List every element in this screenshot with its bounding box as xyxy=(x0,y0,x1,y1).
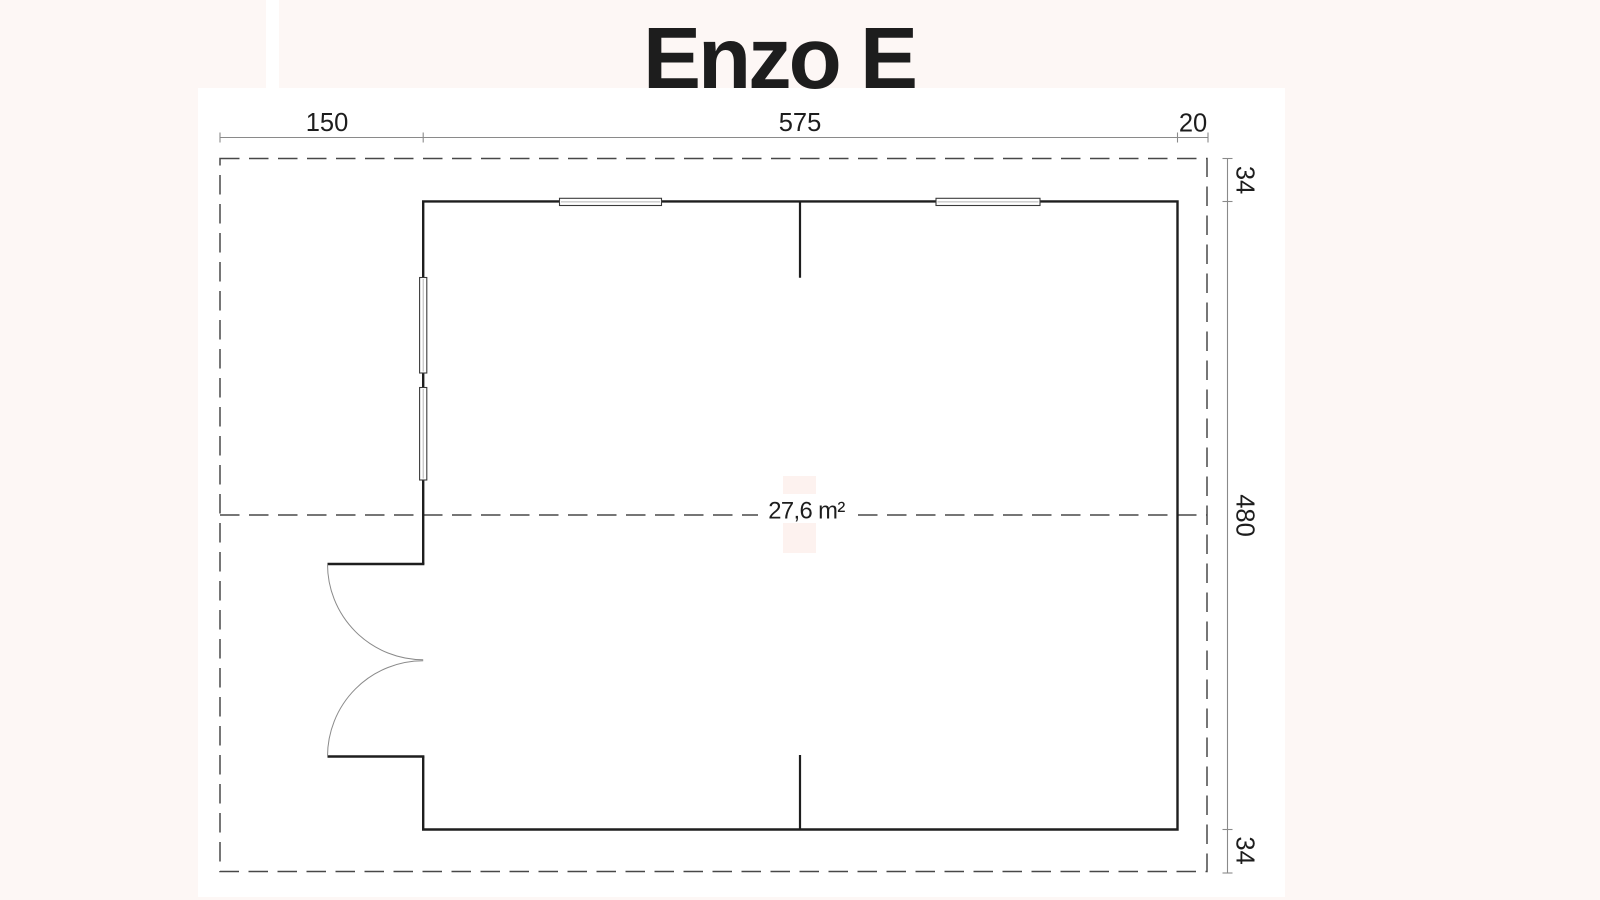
svg-text:150: 150 xyxy=(306,109,349,137)
svg-text:27,6 m²: 27,6 m² xyxy=(768,498,845,525)
svg-text:575: 575 xyxy=(779,109,822,137)
svg-text:Enzo E: Enzo E xyxy=(643,10,915,107)
svg-text:34: 34 xyxy=(1230,836,1258,864)
svg-text:34: 34 xyxy=(1230,166,1258,194)
svg-text:20: 20 xyxy=(1179,110,1207,138)
svg-text:480: 480 xyxy=(1230,494,1258,537)
